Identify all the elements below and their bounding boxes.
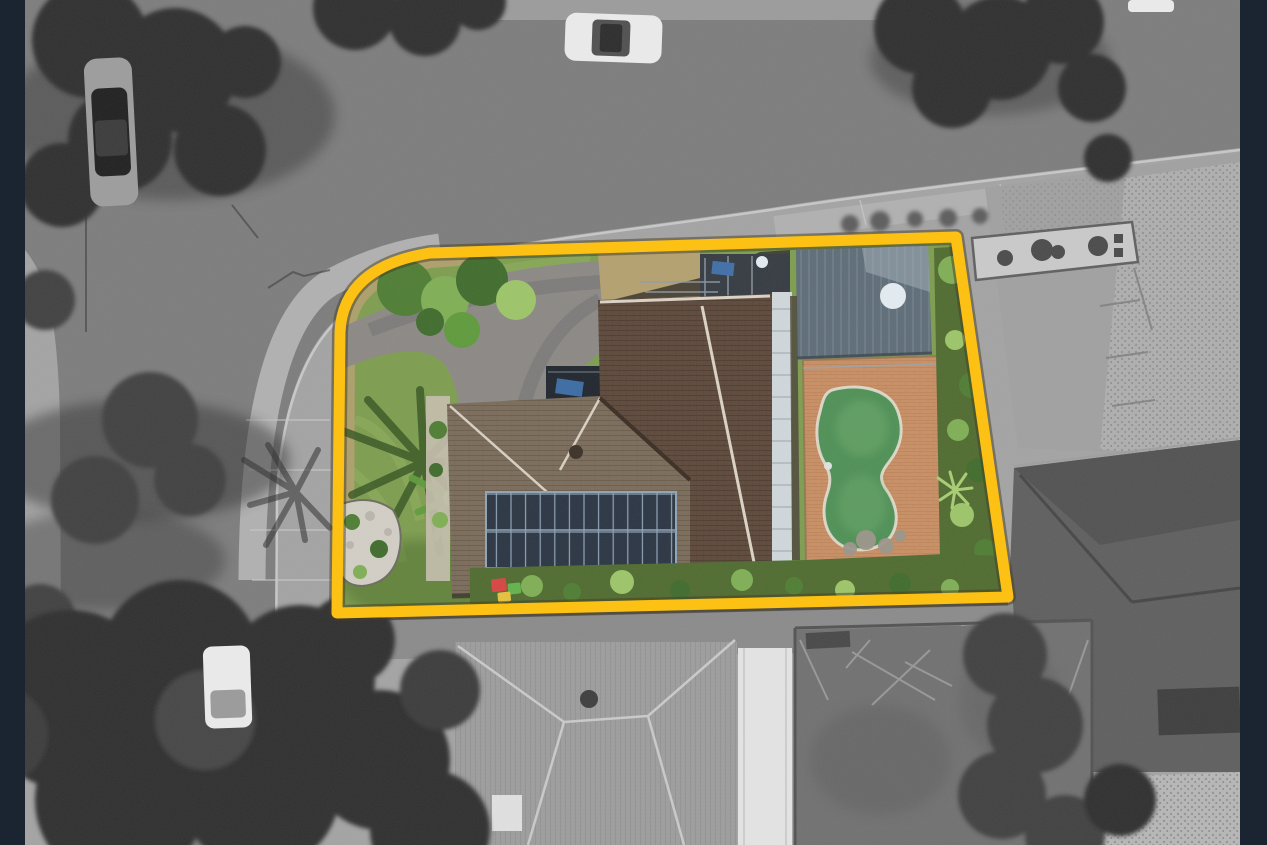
photo-grain <box>25 0 1240 845</box>
right-frame-bar <box>1240 0 1267 845</box>
aerial-photo <box>0 0 1267 845</box>
left-frame-bar <box>0 0 25 845</box>
